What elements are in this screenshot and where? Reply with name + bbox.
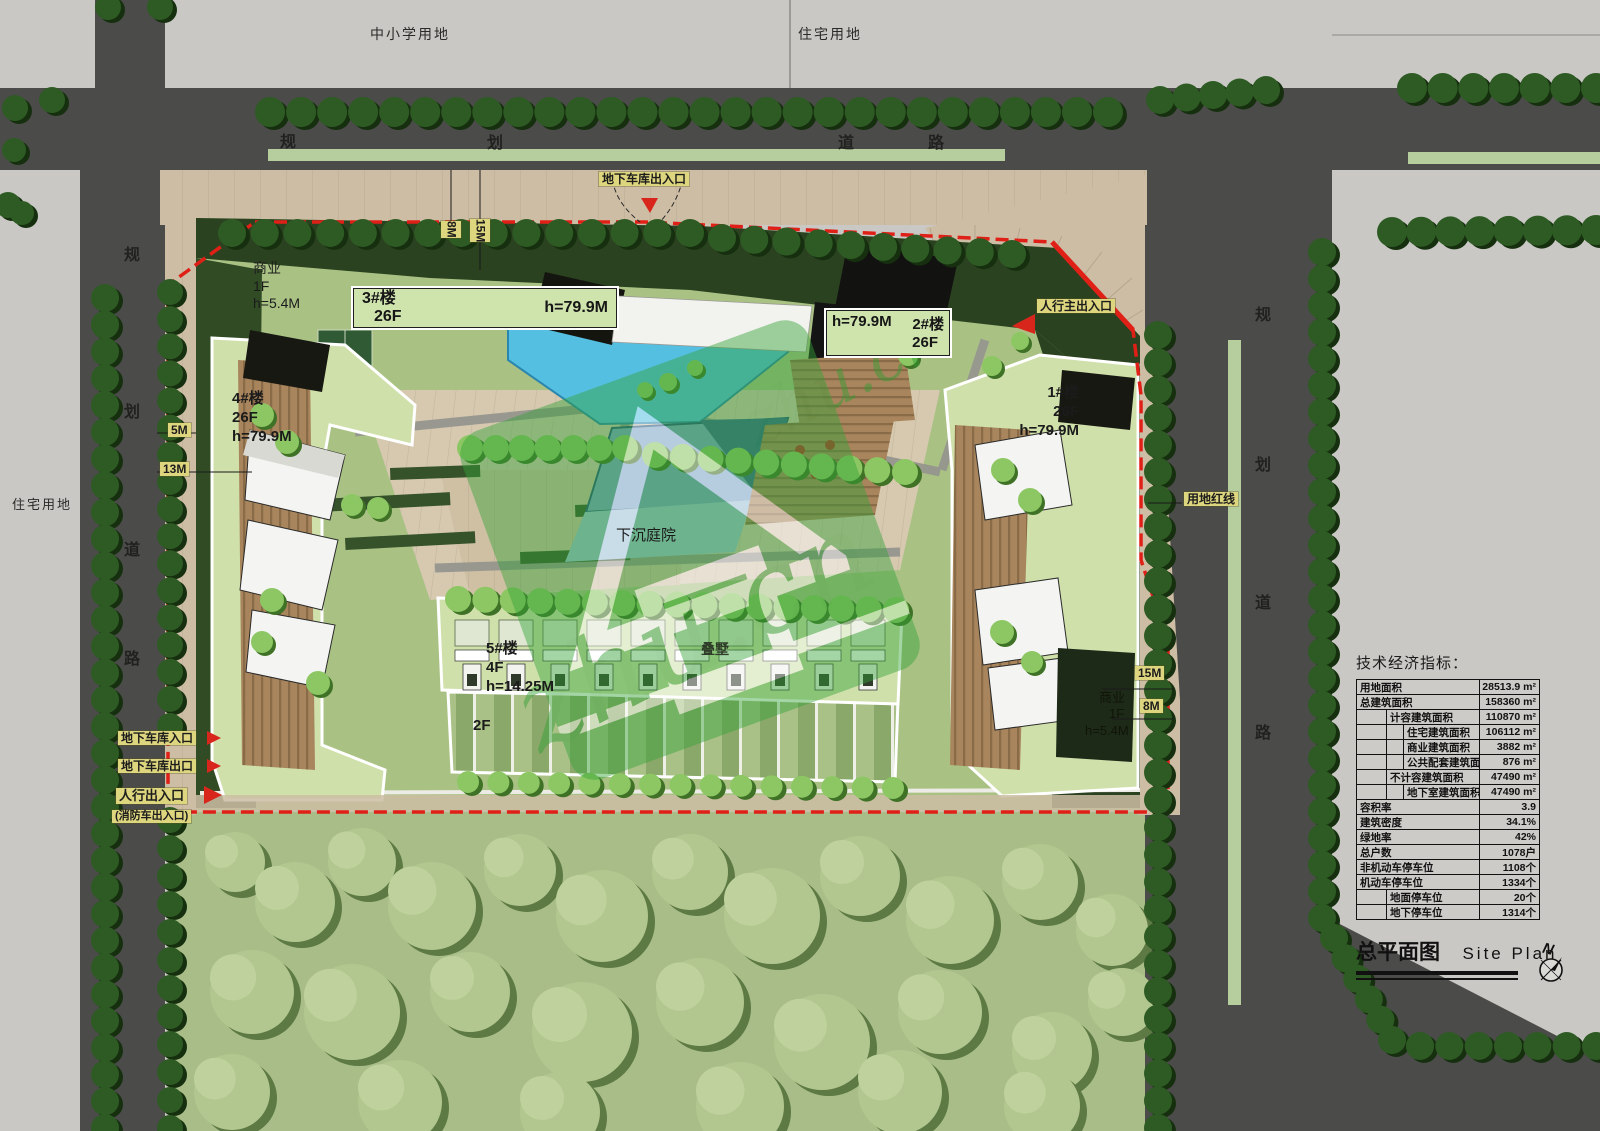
label-garage-entry-exit: 地下车库出入口 [599, 172, 689, 186]
row-label: 非机动车停车位 [1357, 860, 1434, 874]
title-underline-2 [1356, 978, 1518, 980]
row-label: 商业建筑面积 [1404, 740, 1470, 754]
row-value: 47490 m² [1479, 785, 1539, 799]
label-fire-truck-entry: (消防车出入口) [112, 810, 191, 823]
row-label: 地面停车位 [1387, 890, 1443, 904]
building-4-height: h=79.9M [232, 428, 292, 445]
commercial-se-height: h=5.4M [1085, 723, 1129, 738]
label-red-line: 用地红线 [1184, 492, 1238, 506]
drawing-title-en: Site Plan [1462, 944, 1557, 963]
building-5-label: 5#楼 4F h=14.25M [486, 640, 554, 696]
row-value: 158360 m² [1479, 695, 1539, 709]
drawing-title-cn: 总平面图 [1356, 941, 1440, 964]
row-value: 28513.9 m² [1479, 680, 1539, 694]
row-label: 用地面积 [1357, 680, 1402, 694]
title-underline-1 [1356, 971, 1518, 975]
road-left-char-4: 路 [124, 650, 140, 669]
label-garage-out: 地下车库出口 [118, 759, 196, 773]
site-plan-page: zhu.cn zhu.cn N 中小学用地 住宅用地 住宅用地 规 划 道 路 … [0, 0, 1600, 1131]
table-row: 非机动车停车位1108个 [1357, 860, 1539, 875]
table-row: 绿地率42% [1357, 830, 1539, 845]
row-label: 地下停车位 [1387, 905, 1443, 919]
row-value: 110870 m² [1479, 710, 1539, 724]
dim-left-13m: 13M [160, 462, 189, 476]
row-value: 106112 m² [1479, 725, 1539, 739]
building-4-name: 4#楼 [232, 390, 264, 407]
row-label: 总建筑面积 [1357, 695, 1413, 709]
building-3-label-box: 3#楼 26F h=79.9M [353, 288, 617, 328]
road-left-char-1: 规 [124, 246, 140, 265]
row-value: 1314个 [1479, 905, 1539, 919]
row-label: 总户数 [1357, 845, 1392, 859]
median-right-road [1228, 340, 1241, 1005]
table-row: 容积率3.9 [1357, 800, 1539, 815]
table-row: 计容建筑面积110870 m² [1357, 710, 1539, 725]
row-value: 1078户 [1479, 845, 1539, 859]
building-5-wing-label: 2F [473, 717, 491, 736]
row-value: 20个 [1479, 890, 1539, 904]
commercial-se-name: 商业 [1085, 690, 1125, 705]
dim-right-15m: 15M [1135, 666, 1164, 680]
zone-label-residential-top: 住宅用地 [798, 26, 862, 43]
sunken-courtyard-label: 下沉庭院 [616, 527, 676, 546]
median-top-right [1408, 152, 1600, 164]
table-row: 建筑密度34.1% [1357, 815, 1539, 830]
road-top-char-1: 规 [280, 133, 296, 152]
row-value: 34.1% [1479, 815, 1539, 829]
row-value: 47490 m² [1479, 770, 1539, 784]
building-1-name: 1#楼 [1047, 384, 1079, 401]
drawing-title-block: 总平面图 Site Plan [1356, 936, 1518, 980]
commercial-se-floors: 1F [1085, 706, 1124, 721]
table-row: 不计容建筑面积47490 m² [1357, 770, 1539, 785]
zone-label-school: 中小学用地 [370, 26, 450, 43]
row-value: 3882 m² [1479, 740, 1539, 754]
table-row: 地面停车位20个 [1357, 890, 1539, 905]
commercial-nw-height: h=5.4M [253, 295, 300, 311]
building-3-height: h=79.9M [544, 299, 608, 317]
commercial-nw-label: 商业 1F h=5.4M [253, 260, 300, 313]
table-row: 总建筑面积158360 m² [1357, 695, 1539, 710]
table-row: 地下停车位1314个 [1357, 905, 1539, 919]
row-label: 计容建筑面积 [1387, 710, 1453, 724]
road-right-char-4: 路 [1255, 724, 1271, 743]
road-top-char-3: 道 [838, 134, 854, 153]
median-top [268, 149, 1005, 161]
building-4-label: 4#楼 26F h=79.9M [232, 390, 292, 446]
label-pedestrian-entry: 人行出入口 [116, 788, 187, 804]
table-row: 总户数1078户 [1357, 845, 1539, 860]
building-2-label-box: h=79.9M 2#楼 26F [826, 310, 950, 356]
row-label: 建筑密度 [1357, 815, 1402, 829]
row-value: 1108个 [1479, 860, 1539, 874]
building-2-floors: 26F [912, 334, 938, 351]
building-4-floors: 26F [232, 409, 258, 426]
eco-table-title: 技术经济指标： [1356, 652, 1468, 673]
row-label: 地下室建筑面积 [1404, 785, 1479, 799]
road-right-char-3: 道 [1255, 594, 1271, 613]
eco-indicators-table: 用地面积28513.9 m² 总建筑面积158360 m² 计容建筑面积1108… [1356, 679, 1540, 920]
row-label: 不计容建筑面积 [1387, 770, 1464, 784]
label-main-pedestrian-entry: 人行主出入口 [1037, 299, 1115, 313]
dim-left-5m: 5M [168, 423, 191, 437]
commercial-se-label: 商业 1F h=5.4M [1085, 690, 1129, 739]
row-value: 3.9 [1479, 800, 1539, 814]
table-row: 地下室建筑面积47490 m² [1357, 785, 1539, 800]
building-2-name: 2#楼 [912, 313, 944, 334]
building-5-floors: 4F [486, 659, 504, 676]
building-1-floors: 26F [1053, 403, 1079, 420]
zone-label-residential-left: 住宅用地 [12, 497, 72, 513]
table-row: 商业建筑面积3882 m² [1357, 740, 1539, 755]
road-left-char-3: 道 [124, 541, 140, 560]
building-3-name: 3#楼 [362, 290, 396, 307]
building-5-type-label: 叠墅 [701, 641, 729, 659]
road-left [80, 88, 165, 1131]
row-value: 1334个 [1479, 875, 1539, 889]
building-5-height: h=14.25M [486, 678, 554, 695]
row-value: 876 m² [1479, 755, 1539, 769]
table-row: 机动车停车位1334个 [1357, 875, 1539, 890]
dim-right-8m: 8M [1140, 699, 1163, 713]
road-left-char-2: 划 [124, 403, 140, 422]
commercial-nw-name: 商业 [253, 260, 281, 276]
road-right-char-1: 规 [1255, 306, 1271, 325]
table-row: 公共配套建筑面积876 m² [1357, 755, 1539, 770]
dim-top-8m: 8M [441, 221, 461, 238]
row-value: 42% [1479, 830, 1539, 844]
row-label: 住宅建筑面积 [1404, 725, 1470, 739]
road-top-char-2: 划 [487, 134, 503, 153]
building-1-height: h=79.9M [1019, 422, 1079, 439]
row-label: 容积率 [1357, 800, 1392, 814]
row-label: 公共配套建筑面积 [1404, 755, 1479, 769]
table-row: 用地面积28513.9 m² [1357, 680, 1539, 695]
building-1-label: 1#楼 26F h=79.9M [1003, 384, 1079, 440]
row-label: 绿地率 [1357, 830, 1392, 844]
building-5-name: 5#楼 [486, 640, 518, 657]
label-garage-in: 地下车库入口 [118, 731, 196, 745]
dim-top-15m: 15M [470, 219, 490, 242]
table-row: 住宅建筑面积106112 m² [1357, 725, 1539, 740]
building-3-floors: 26F [362, 308, 402, 325]
south-walk [196, 795, 1146, 812]
row-label: 机动车停车位 [1357, 875, 1423, 889]
commercial-nw-floors: 1F [253, 278, 269, 294]
road-top-char-4: 路 [928, 134, 944, 153]
road-right-char-2: 划 [1255, 456, 1271, 475]
building-2-height: h=79.9M [832, 313, 892, 334]
